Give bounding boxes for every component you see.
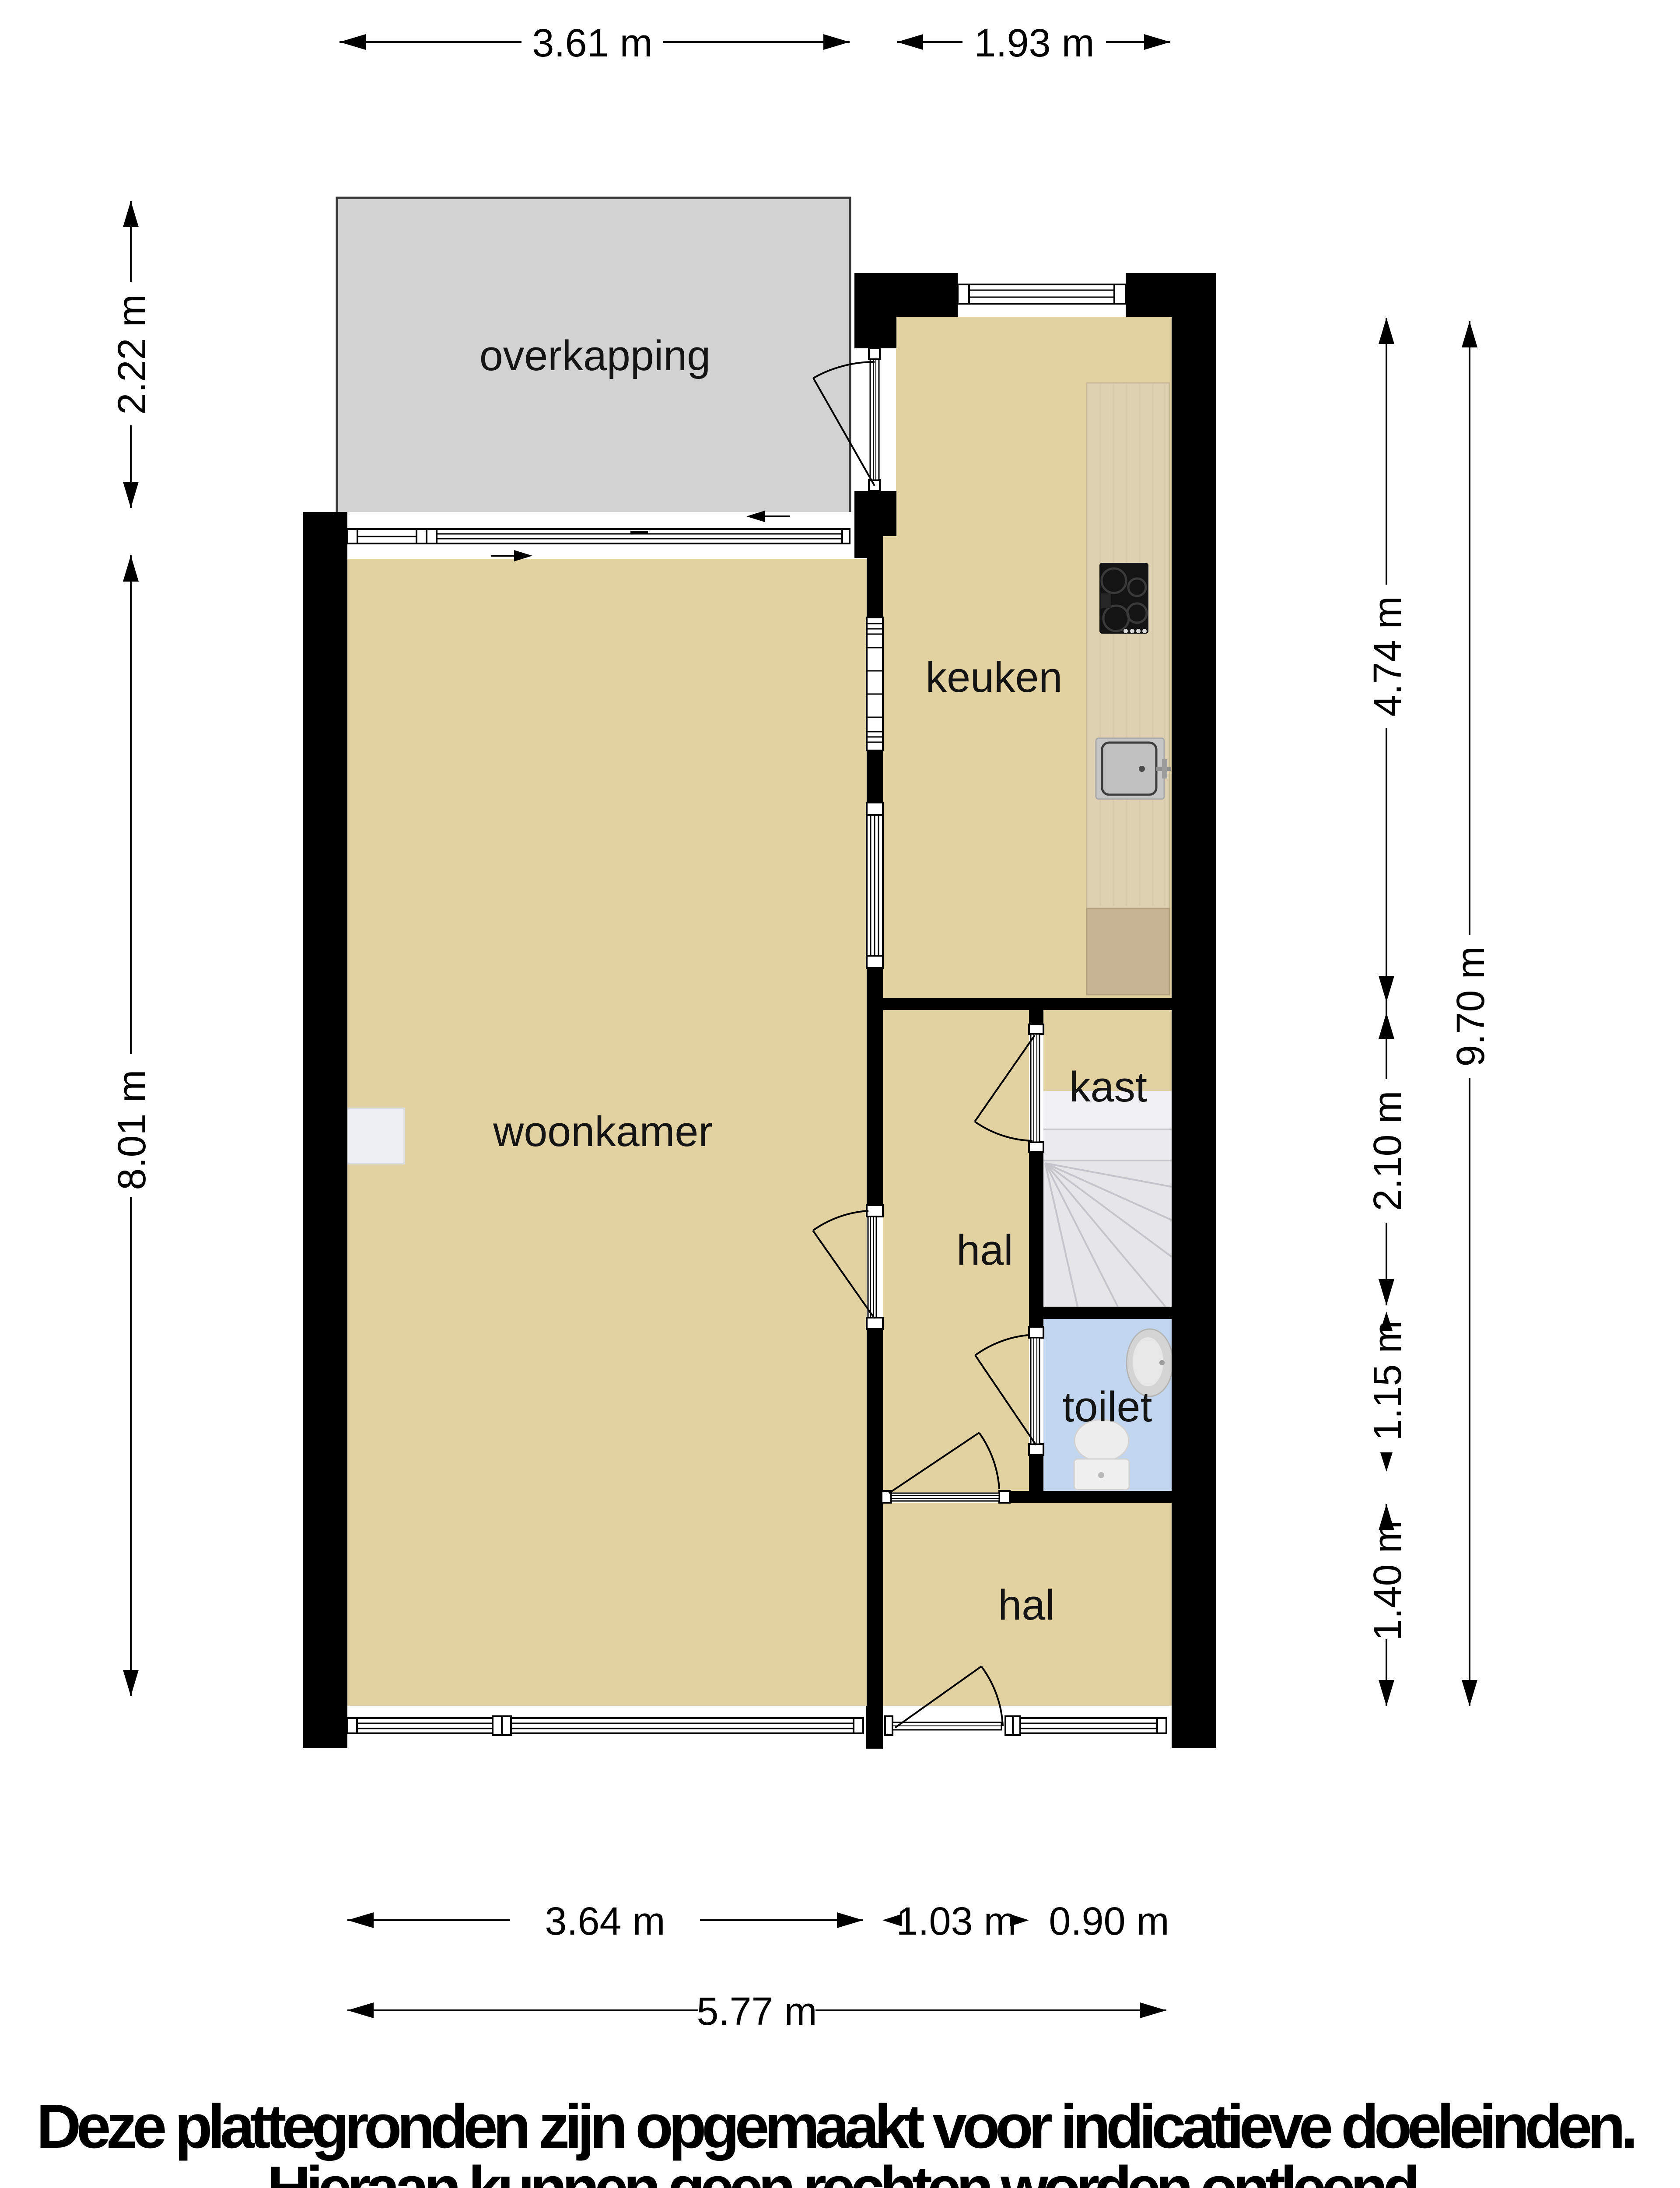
svg-text:1.03 m: 1.03 m: [896, 1900, 1016, 1943]
svg-text:hal: hal: [956, 1226, 1013, 1274]
svg-text:toilet: toilet: [1063, 1383, 1152, 1431]
svg-text:overkapping: overkapping: [479, 332, 710, 379]
svg-text:5.77 m: 5.77 m: [696, 1990, 817, 2034]
svg-text:3.61 m: 3.61 m: [532, 21, 652, 65]
svg-text:1.15 m: 1.15 m: [1366, 1320, 1410, 1441]
svg-text:0.90 m: 0.90 m: [1049, 1900, 1169, 1943]
svg-text:Hieraan kunnen geen rechten wo: Hieraan kunnen geen rechten worden ontle…: [267, 2153, 1428, 2188]
svg-text:woonkamer: woonkamer: [493, 1108, 712, 1155]
svg-text:1.40 m: 1.40 m: [1366, 1520, 1410, 1641]
svg-text:hal: hal: [998, 1581, 1054, 1629]
svg-text:9.70 m: 9.70 m: [1449, 946, 1493, 1066]
svg-text:3.64 m: 3.64 m: [545, 1900, 665, 1943]
svg-text:kast: kast: [1069, 1063, 1147, 1111]
svg-text:keuken: keuken: [926, 653, 1063, 701]
svg-text:4.74 m: 4.74 m: [1366, 596, 1410, 716]
svg-text:8.01 m: 8.01 m: [110, 1069, 154, 1190]
svg-text:2.22 m: 2.22 m: [110, 294, 154, 414]
svg-text:2.10 m: 2.10 m: [1366, 1090, 1410, 1211]
svg-text:Deze plattegronden zijn opgema: Deze plattegronden zijn opgemaakt voor i…: [36, 2092, 1634, 2161]
svg-text:1.93 m: 1.93 m: [974, 21, 1094, 65]
